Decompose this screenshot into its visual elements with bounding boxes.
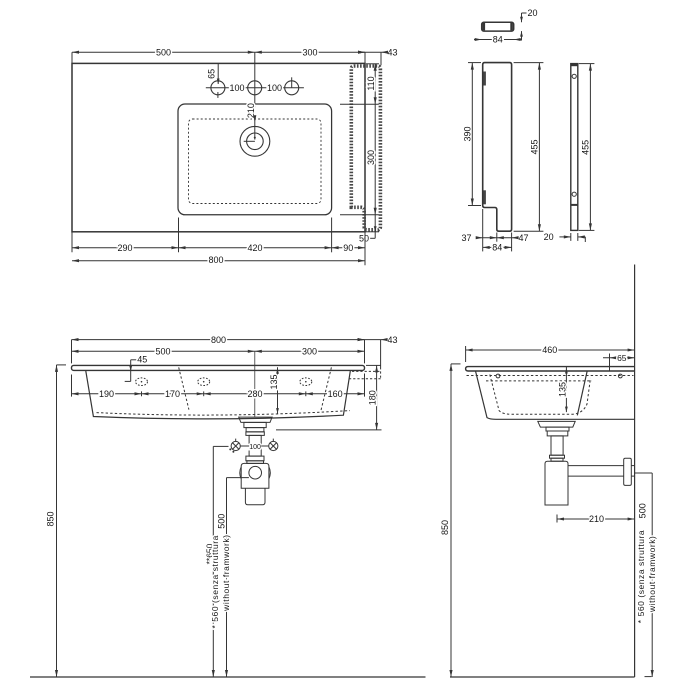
svg-text:43: 43: [387, 335, 397, 345]
svg-text:84: 84: [493, 35, 503, 45]
svg-text:43: 43: [387, 47, 397, 57]
svg-text:850: 850: [440, 520, 450, 535]
svg-text:45: 45: [137, 355, 147, 365]
svg-text:420: 420: [247, 243, 262, 253]
svg-text:500: 500: [155, 346, 170, 356]
svg-text:170: 170: [165, 389, 180, 399]
svg-text:300: 300: [302, 346, 317, 356]
svg-text:47: 47: [519, 233, 529, 243]
svg-text:800: 800: [208, 255, 223, 265]
svg-text:850: 850: [46, 511, 56, 526]
svg-text:100: 100: [249, 444, 261, 451]
svg-text:20: 20: [527, 8, 537, 18]
svg-text:135: 135: [269, 374, 279, 389]
svg-text:without framwork): without framwork): [221, 534, 231, 611]
svg-text:180: 180: [368, 390, 378, 405]
svg-text:without framwork): without framwork): [647, 536, 657, 613]
svg-text:290: 290: [117, 243, 132, 253]
svg-text:455: 455: [580, 140, 590, 155]
svg-text:135: 135: [557, 382, 567, 397]
svg-text:100: 100: [267, 83, 282, 93]
svg-text:800: 800: [211, 335, 226, 345]
svg-text:37: 37: [461, 233, 471, 243]
svg-text:500: 500: [156, 47, 171, 57]
svg-text:460: 460: [542, 345, 557, 355]
svg-text:20: 20: [544, 232, 554, 242]
svg-text:500: 500: [216, 514, 226, 529]
svg-text:84: 84: [492, 243, 502, 253]
svg-text:160: 160: [328, 389, 343, 399]
svg-text:90: 90: [343, 243, 353, 253]
svg-text:* 560 (senza struttura: * 560 (senza struttura: [636, 530, 646, 623]
svg-text:390: 390: [462, 126, 472, 141]
svg-text:280: 280: [247, 389, 262, 399]
svg-text:300: 300: [302, 47, 317, 57]
svg-text:190: 190: [99, 389, 114, 399]
svg-text:* 560 (senza struttura: * 560 (senza struttura: [210, 535, 220, 628]
svg-text:455: 455: [529, 139, 539, 154]
svg-text:100: 100: [229, 83, 244, 93]
svg-text:500: 500: [638, 503, 648, 518]
svg-text:110: 110: [366, 76, 376, 90]
svg-text:65: 65: [207, 69, 217, 79]
svg-text:50: 50: [359, 233, 369, 243]
svg-text:65: 65: [617, 353, 627, 363]
svg-text:300: 300: [366, 150, 376, 165]
svg-text:210: 210: [589, 514, 604, 524]
